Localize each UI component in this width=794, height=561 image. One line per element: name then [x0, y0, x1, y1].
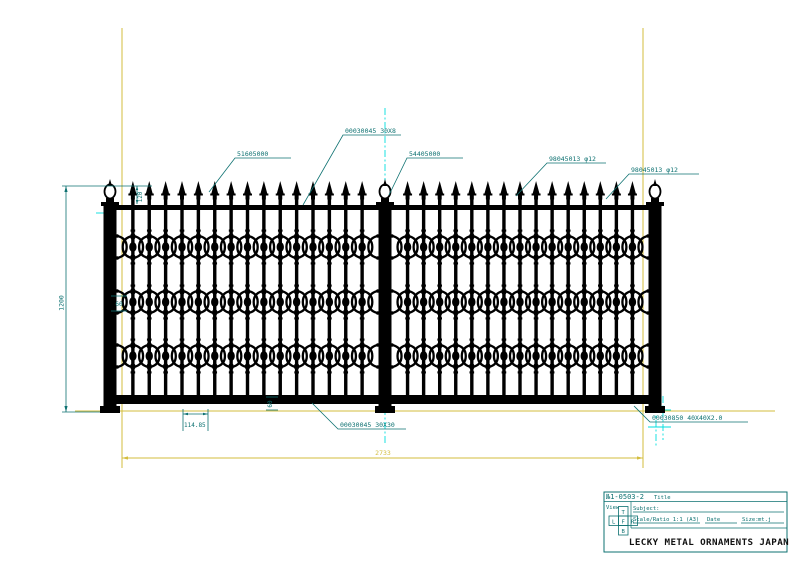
- rect: [327, 285, 332, 287]
- scroll-knob: [165, 289, 169, 293]
- spear-finial: [532, 181, 540, 195]
- ellipse: [342, 297, 349, 307]
- ellipse: [436, 297, 443, 307]
- scroll-knob: [165, 234, 169, 238]
- rect: [245, 317, 250, 319]
- ellipse: [548, 242, 555, 252]
- scroll-knob: [438, 289, 442, 293]
- scroll-knob: [361, 343, 365, 347]
- rect: [518, 262, 523, 264]
- scroll-knob: [246, 365, 250, 369]
- ellipse: [178, 297, 185, 307]
- ellipse: [195, 242, 202, 252]
- scroll-knob: [390, 256, 394, 260]
- ellipse: [293, 297, 300, 307]
- rect: [245, 285, 250, 287]
- spear-collar: [406, 195, 410, 200]
- scroll-knob: [615, 343, 619, 347]
- spear-collar: [438, 195, 442, 200]
- rect: [229, 371, 234, 373]
- rect: [566, 262, 571, 264]
- rect: [212, 371, 217, 373]
- scroll-knob: [214, 311, 218, 315]
- scroll-knob: [279, 365, 283, 369]
- rect: [360, 371, 365, 373]
- spear-collar: [422, 195, 426, 200]
- scroll-knob: [438, 365, 442, 369]
- rect: [598, 339, 603, 341]
- scroll-knob: [165, 256, 169, 260]
- ellipse: [452, 242, 459, 252]
- scroll-knob: [263, 311, 267, 315]
- scroll-knob: [599, 343, 603, 347]
- rect: [294, 285, 299, 287]
- scroll-knob: [438, 256, 442, 260]
- scroll-knob: [312, 343, 316, 347]
- scroll-knob: [519, 234, 523, 238]
- spear-collar: [598, 195, 602, 200]
- spear-collar: [550, 195, 554, 200]
- scroll-knob: [376, 311, 380, 315]
- rect: [502, 285, 507, 287]
- rect: [245, 371, 250, 373]
- rect: [453, 262, 458, 264]
- scroll-knob: [181, 256, 185, 260]
- ellipse: [162, 297, 169, 307]
- scroll-knob: [583, 234, 587, 238]
- scroll-knob: [345, 234, 349, 238]
- ball-finial: [105, 185, 116, 199]
- ellipse: [227, 242, 234, 252]
- scroll-knob: [471, 311, 475, 315]
- size-label: Size:: [742, 517, 759, 523]
- ellipse: [227, 297, 234, 307]
- label-picket-left: 51605000: [237, 150, 268, 158]
- scroll-knob: [148, 365, 152, 369]
- scroll-knob: [551, 343, 555, 347]
- spear-collar: [295, 195, 299, 200]
- scroll-knob: [214, 234, 218, 238]
- scroll-knob: [471, 343, 475, 347]
- rect: [294, 339, 299, 341]
- scroll-knob: [376, 289, 380, 293]
- scroll-knob: [390, 343, 394, 347]
- scroll-knob: [646, 289, 650, 293]
- ellipse: [452, 351, 459, 361]
- scroll-knob: [535, 343, 539, 347]
- fence-elevation: [100, 179, 665, 413]
- rect: [131, 371, 136, 373]
- scroll-knob: [646, 311, 650, 315]
- rect: [311, 230, 316, 232]
- rect: [421, 262, 426, 264]
- scroll-knob: [361, 311, 365, 315]
- ellipse: [629, 242, 636, 252]
- ellipse: [244, 351, 251, 361]
- scroll-knob: [390, 289, 394, 293]
- scroll-knob: [583, 256, 587, 260]
- ellipse: [484, 297, 491, 307]
- rect: [262, 230, 267, 232]
- spear-finial: [293, 181, 301, 195]
- ellipse: [309, 242, 316, 252]
- scroll-knob: [263, 234, 267, 238]
- projection-left: L: [612, 519, 616, 525]
- scroll-knob: [519, 256, 523, 260]
- ellipse: [613, 242, 620, 252]
- rect: [294, 230, 299, 232]
- label-end-post: 00030850 40X40X2.0: [652, 414, 723, 422]
- rect: [405, 371, 410, 373]
- rect: [131, 317, 136, 319]
- scroll-knob: [535, 256, 539, 260]
- scroll-knob: [132, 343, 136, 347]
- scroll-knob: [312, 256, 316, 260]
- ellipse: [178, 351, 185, 361]
- spear-finial: [452, 181, 460, 195]
- rect: [147, 339, 152, 341]
- scroll-knob: [646, 343, 650, 347]
- scroll-knob: [535, 234, 539, 238]
- ellipse: [277, 242, 284, 252]
- rect: [405, 339, 410, 341]
- post: [645, 179, 665, 413]
- scroll-knob: [296, 343, 300, 347]
- scroll-knob: [535, 289, 539, 293]
- rect: [405, 285, 410, 287]
- ellipse: [326, 297, 333, 307]
- ellipse: [342, 351, 349, 361]
- scroll-knob: [132, 256, 136, 260]
- rect: [196, 339, 201, 341]
- rect: [229, 262, 234, 264]
- rect: [437, 230, 442, 232]
- scroll-knob: [197, 289, 201, 293]
- ellipse: [146, 351, 153, 361]
- rect: [421, 230, 426, 232]
- scroll-knob: [551, 234, 555, 238]
- rect: [437, 285, 442, 287]
- post-shaft: [104, 205, 117, 413]
- spear-finial: [484, 181, 492, 195]
- scroll-knob: [230, 289, 234, 293]
- rect: [421, 285, 426, 287]
- rect: [470, 371, 475, 373]
- rect: [147, 371, 152, 373]
- rect: [327, 262, 332, 264]
- rect: [180, 285, 185, 287]
- rect: [486, 339, 491, 341]
- scroll-knob: [599, 256, 603, 260]
- rect: [614, 262, 619, 264]
- ellipse: [500, 297, 507, 307]
- ellipse: [211, 297, 218, 307]
- ellipse: [452, 297, 459, 307]
- finial-height-dim: 120: [137, 191, 144, 202]
- spear-collar: [131, 195, 135, 200]
- company-name: LECKY METAL ORNAMENTS JAPAN: [629, 537, 789, 548]
- ellipse: [277, 297, 284, 307]
- rect: [262, 285, 267, 287]
- scroll-knob: [503, 343, 507, 347]
- rect: [294, 262, 299, 264]
- spear-finial: [468, 181, 476, 195]
- spear-collar: [196, 195, 200, 200]
- spear-finial: [516, 181, 524, 195]
- rect: [518, 339, 523, 341]
- rect: [518, 317, 523, 319]
- rect: [630, 371, 635, 373]
- rect: [453, 371, 458, 373]
- spear-finial: [500, 181, 508, 195]
- scroll-knob: [263, 256, 267, 260]
- scroll-knob: [115, 289, 119, 293]
- scroll-knob: [631, 256, 635, 260]
- ellipse: [629, 351, 636, 361]
- ellipse: [195, 351, 202, 361]
- spear-finial: [436, 181, 444, 195]
- rect: [196, 285, 201, 287]
- scroll-knob: [197, 343, 201, 347]
- scroll-knob: [165, 343, 169, 347]
- rect: [196, 230, 201, 232]
- scroll-knob: [567, 311, 571, 315]
- scroll-knob: [312, 365, 316, 369]
- scroll-knob: [422, 256, 426, 260]
- scroll-knob: [181, 343, 185, 347]
- rect: [180, 339, 185, 341]
- spear-collar: [278, 195, 282, 200]
- spear-finial: [178, 181, 186, 195]
- rect: [453, 285, 458, 287]
- rect: [518, 230, 523, 232]
- rect: [470, 230, 475, 232]
- scroll-knob: [181, 289, 185, 293]
- rect: [486, 230, 491, 232]
- ellipse: [597, 242, 604, 252]
- scroll-knob: [583, 365, 587, 369]
- rect: [614, 285, 619, 287]
- cad-drawing: 2733 00030045 30X8 51605000 54405000 980…: [0, 0, 794, 561]
- ellipse: [420, 297, 427, 307]
- post-base: [100, 406, 120, 413]
- rect: [582, 262, 587, 264]
- ellipse: [227, 351, 234, 361]
- rect: [196, 371, 201, 373]
- rect: [630, 230, 635, 232]
- scroll-knob: [246, 343, 250, 347]
- scroll-knob: [454, 256, 458, 260]
- scroll-knob: [345, 343, 349, 347]
- ellipse: [613, 297, 620, 307]
- scroll-knob: [631, 289, 635, 293]
- scroll-knob: [361, 256, 365, 260]
- ellipse: [516, 351, 523, 361]
- finial-spike: [383, 179, 387, 186]
- rect: [327, 317, 332, 319]
- scroll-knob: [263, 365, 267, 369]
- rect: [131, 230, 136, 232]
- rect: [163, 262, 168, 264]
- scroll-knob: [599, 311, 603, 315]
- bottom-rail: [117, 395, 379, 404]
- scroll-knob: [438, 311, 442, 315]
- scroll-knob: [631, 365, 635, 369]
- scroll-knob: [503, 289, 507, 293]
- bottom-gap-dim: 60: [267, 400, 274, 408]
- ellipse: [613, 351, 620, 361]
- spear-finial: [260, 181, 268, 195]
- scroll-knob: [328, 365, 332, 369]
- spear-collar: [229, 195, 233, 200]
- label-bottom-rail: 00030045 30X30: [340, 421, 395, 429]
- rect: [360, 339, 365, 341]
- scroll-knob: [214, 289, 218, 293]
- scroll-knob: [312, 311, 316, 315]
- rect: [262, 339, 267, 341]
- ellipse: [500, 351, 507, 361]
- rect: [229, 317, 234, 319]
- rect: [534, 317, 539, 319]
- scroll-knob: [296, 311, 300, 315]
- size-value: mt.j: [758, 517, 771, 523]
- rect: [278, 339, 283, 341]
- ellipse: [581, 242, 588, 252]
- spear-finial: [629, 181, 637, 195]
- ball-finial: [380, 185, 391, 199]
- spear-finial: [358, 181, 366, 195]
- spear-collar: [262, 195, 266, 200]
- rect: [262, 371, 267, 373]
- scroll-knob: [406, 311, 410, 315]
- ellipse: [468, 297, 475, 307]
- rect: [502, 371, 507, 373]
- scroll-knob: [615, 311, 619, 315]
- scroll-knob: [519, 289, 523, 293]
- scroll-knob: [567, 256, 571, 260]
- ellipse: [420, 242, 427, 252]
- scroll-knob: [615, 256, 619, 260]
- scroll-knob: [438, 234, 442, 238]
- scroll-knob: [599, 365, 603, 369]
- rect: [582, 371, 587, 373]
- post-cap: [376, 202, 394, 206]
- picket-spacing-dim: 114.85: [184, 422, 206, 429]
- spear-finial: [129, 181, 137, 195]
- post-cap: [646, 202, 664, 206]
- spear-finial: [548, 181, 556, 195]
- scroll-knob: [422, 365, 426, 369]
- rect: [630, 339, 635, 341]
- scroll-knob: [454, 289, 458, 293]
- spear-finial: [227, 181, 235, 195]
- scroll-knob: [197, 365, 201, 369]
- scroll-knob: [115, 256, 119, 260]
- rect: [550, 371, 555, 373]
- rect: [453, 317, 458, 319]
- rect: [437, 262, 442, 264]
- spear-collar: [566, 195, 570, 200]
- rect: [550, 262, 555, 264]
- ellipse: [404, 351, 411, 361]
- scroll-knob: [406, 289, 410, 293]
- rect: [147, 230, 152, 232]
- scroll-knob: [646, 234, 650, 238]
- spear-collar: [147, 195, 151, 200]
- rect: [470, 262, 475, 264]
- ellipse: [420, 351, 427, 361]
- scroll-knob: [551, 311, 555, 315]
- scroll-knob: [406, 256, 410, 260]
- scroll-knob: [328, 311, 332, 315]
- rect: [598, 230, 603, 232]
- scroll-knob: [230, 234, 234, 238]
- ellipse: [146, 242, 153, 252]
- rect: [343, 262, 348, 264]
- scroll-knob: [390, 234, 394, 238]
- drawing-canvas: 2733 00030045 30X8 51605000 54405000 980…: [0, 0, 794, 561]
- ellipse: [500, 242, 507, 252]
- ellipse: [597, 297, 604, 307]
- rect: [212, 339, 217, 341]
- ellipse: [516, 297, 523, 307]
- scroll-knob: [631, 311, 635, 315]
- scroll-knob: [406, 234, 410, 238]
- scroll-knob: [551, 256, 555, 260]
- rect: [598, 262, 603, 264]
- scroll-knob: [535, 365, 539, 369]
- scroll-knob: [197, 234, 201, 238]
- scroll-knob: [390, 311, 394, 315]
- rect: [343, 317, 348, 319]
- scroll-knob: [422, 234, 426, 238]
- scroll-knob: [503, 365, 507, 369]
- spear-collar: [454, 195, 458, 200]
- ellipse: [581, 351, 588, 361]
- rect: [614, 339, 619, 341]
- scroll-knob: [406, 365, 410, 369]
- rect: [550, 339, 555, 341]
- scroll-knob: [454, 311, 458, 315]
- spear-collar: [180, 195, 184, 200]
- scroll-knob: [230, 311, 234, 315]
- rect: [534, 230, 539, 232]
- scroll-knob: [471, 234, 475, 238]
- ellipse: [211, 351, 218, 361]
- rect: [421, 339, 426, 341]
- post-shaft: [379, 205, 392, 413]
- ellipse: [293, 242, 300, 252]
- post: [375, 179, 395, 413]
- rect: [163, 317, 168, 319]
- scroll-knob: [246, 234, 250, 238]
- ellipse: [342, 242, 349, 252]
- rect: [437, 317, 442, 319]
- scroll-knob: [583, 289, 587, 293]
- scroll-knob: [503, 311, 507, 315]
- rect: [163, 230, 168, 232]
- rect: [486, 262, 491, 264]
- rect: [550, 285, 555, 287]
- rect: [343, 371, 348, 373]
- scroll-knob: [567, 289, 571, 293]
- rect: [534, 285, 539, 287]
- scroll-knob: [263, 343, 267, 347]
- scroll-knob: [376, 234, 380, 238]
- rect: [180, 262, 185, 264]
- scroll-knob: [246, 289, 250, 293]
- spear-finial: [276, 181, 284, 195]
